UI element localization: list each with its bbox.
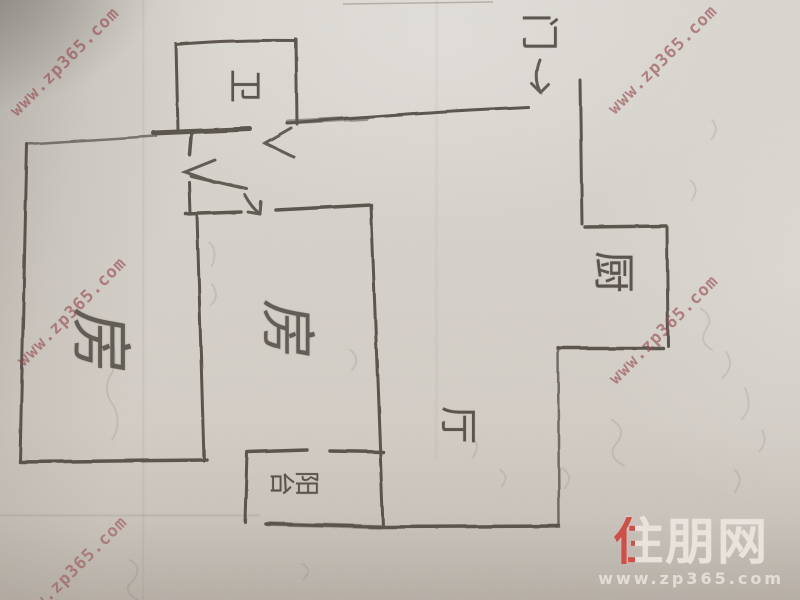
wall-balcony-left — [245, 452, 247, 522]
wall-bedroom-middle-top-left — [186, 212, 241, 214]
wall-kitchen-right — [667, 227, 668, 346]
zp365-logo-char-zhu: 住 住 — [613, 517, 665, 567]
zp365-logo-url: www.zp365.com — [598, 569, 784, 588]
floor-plan-sketch — [0, 0, 800, 600]
room-label-entry-door: 门 — [520, 13, 558, 51]
wall-right-upper — [580, 80, 582, 224]
zp365-logo-char-wang: 网 — [717, 513, 769, 571]
wall-hall-left-lower — [189, 182, 190, 214]
floor-plan-photo: 房 房 卫 厨 厅 门 阳台 www.zp365.com www.zp365.c… — [0, 0, 800, 600]
wall-bathroom-right — [296, 39, 297, 124]
door-jamb-tick — [190, 132, 192, 155]
wall-balcony-top-right — [330, 451, 383, 452]
wall-balcony-top-left — [248, 450, 307, 452]
wall-bedroom-left-bottom — [20, 460, 207, 462]
room-label-living-room: 厅 — [439, 406, 477, 444]
zp365-logo-brand: 住 住 朋网 — [598, 517, 784, 567]
wall-kitchen-top — [585, 226, 666, 227]
room-label-kitchen: 厨 — [592, 251, 634, 293]
wall-bathroom-left — [176, 44, 178, 131]
wall-right-lower — [558, 347, 559, 525]
room-label-bedroom-left: 房 — [69, 306, 131, 379]
wall-bottom-heavy — [268, 524, 380, 527]
zp365-logo-char-peng: 朋 — [665, 513, 717, 571]
zp365-logo: 住 住 朋网 www.zp365.com — [598, 517, 784, 588]
room-label-bathroom: 卫 — [227, 69, 261, 103]
room-label-balcony: 阳台 — [270, 470, 320, 495]
paper-grain — [0, 0, 800, 600]
room-label-bedroom-middle: 房 — [258, 297, 314, 363]
